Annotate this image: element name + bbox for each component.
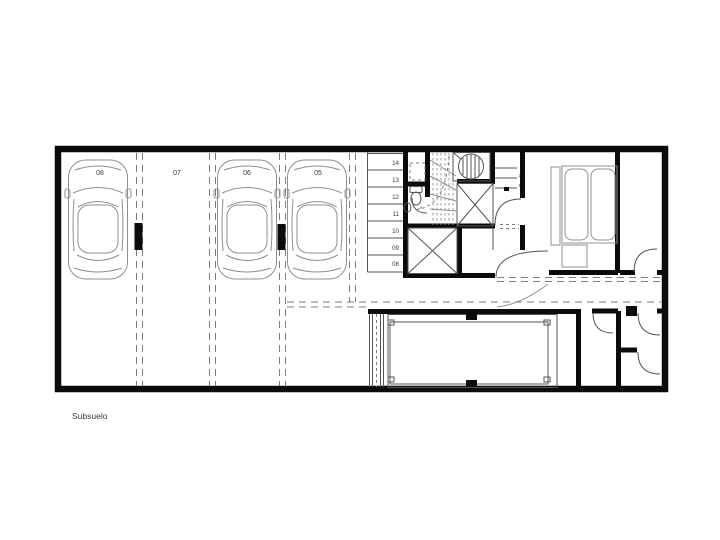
door-swing-arc — [412, 198, 427, 213]
basement-floor-plan: 08 07 06 05 14 13 12 11 10 09 08 — [0, 0, 720, 540]
stair-step-label: 13 — [392, 177, 399, 184]
shelf — [551, 167, 560, 245]
spiral-stair-icon — [453, 153, 490, 182]
structural-column — [135, 223, 143, 250]
car-icon — [214, 160, 280, 279]
parking-space-label: 05 — [314, 170, 322, 177]
equipment-unit — [591, 169, 615, 240]
outer-wall — [58, 149, 665, 389]
floor-plan-page: 08 07 06 05 14 13 12 11 10 09 08 — [0, 0, 720, 540]
winder-stair — [417, 153, 456, 225]
pit-anchor-tab — [466, 380, 477, 387]
stair-step-label: 09 — [392, 245, 399, 252]
landing-step-label: 2 — [519, 173, 522, 178]
driveway-dashed-lines — [287, 278, 661, 308]
pit-anchor-tab — [466, 313, 477, 320]
cabinet — [562, 245, 587, 267]
equipment-frame — [562, 166, 617, 243]
equipment-unit — [565, 169, 588, 240]
structural-column — [278, 224, 286, 250]
car-icon — [65, 160, 131, 279]
plan-title: Subsuelo — [72, 411, 108, 421]
stair-step-label: 12 — [392, 194, 399, 201]
shaft-void-box — [457, 184, 493, 227]
interior-walls — [403, 150, 663, 389]
stair-landing: 2 1 — [495, 168, 522, 229]
closet-dashed-outline — [410, 163, 425, 180]
car-icon — [284, 160, 350, 279]
stair-flight: 14 13 12 11 10 09 08 — [368, 153, 404, 273]
parking-space-label: 08 — [96, 170, 104, 177]
landing-step-label: 1 — [519, 183, 522, 188]
parking-space-label: 07 — [173, 170, 181, 177]
stair-step-label: 14 — [392, 160, 399, 167]
stair-step-label: 11 — [393, 211, 400, 218]
stair-step-label: 08 — [392, 261, 399, 268]
parking-space-label: 06 — [243, 170, 251, 177]
shaft-void-box — [408, 228, 457, 274]
toilet-icon — [410, 187, 422, 206]
stair-step-label: 10 — [392, 228, 399, 235]
car-lift-pit — [368, 309, 580, 389]
storage-room-furniture — [551, 166, 617, 267]
